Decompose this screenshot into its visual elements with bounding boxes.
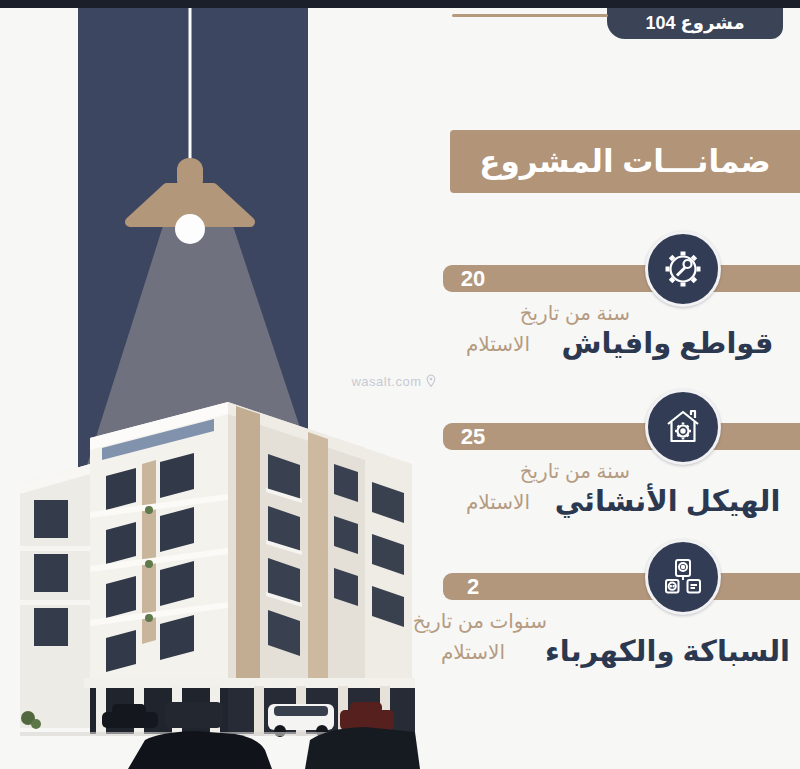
parked-car xyxy=(102,712,158,728)
guarantee-item-switches: 20 xyxy=(0,265,800,385)
guarantee-icon-circle xyxy=(645,389,721,465)
duration-text-line1: سنوات من تاريخ xyxy=(413,609,547,633)
carport-column xyxy=(96,686,106,736)
project-badge-label: مشروع 104 xyxy=(645,13,744,33)
foreground-car xyxy=(128,731,272,769)
infographic-canvas: مشروع 104 xyxy=(0,0,800,769)
duration-text-line2: الاستلام xyxy=(466,490,530,514)
balcony-plant xyxy=(145,560,153,568)
duration-value: 20 xyxy=(445,265,501,292)
car-windows xyxy=(274,706,328,716)
guarantee-label: السباكة والكهرباء xyxy=(535,634,800,668)
gear-wrench-icon xyxy=(661,247,705,291)
duration-text-line1: سنة من تاريخ xyxy=(520,301,630,325)
house-gear-icon xyxy=(661,405,705,449)
lamp-cord xyxy=(189,8,192,162)
project-badge: مشروع 104 xyxy=(607,8,783,39)
appliances-plug-icon xyxy=(661,555,705,599)
badge-accent-line xyxy=(452,14,608,17)
section-title: ضمانـــات المشروع xyxy=(479,143,771,180)
section-title-box: ضمانـــات المشروع xyxy=(450,130,800,193)
carport-column xyxy=(254,686,264,736)
guarantee-icon-circle xyxy=(645,539,721,615)
guarantee-icon-circle xyxy=(645,231,721,307)
building-ledge xyxy=(20,546,90,551)
duration-text-line2: الاستلام xyxy=(466,332,530,356)
light-bulb xyxy=(175,214,205,244)
guarantee-label: قواطع وافياش xyxy=(535,326,800,360)
duration-text-line2: الاستلام xyxy=(441,640,505,664)
duration-value: 25 xyxy=(445,423,501,450)
top-bar xyxy=(0,0,800,8)
guarantee-item-structure: 25 xyxy=(0,423,800,543)
duration-value: 2 xyxy=(445,573,501,600)
parked-car xyxy=(165,702,223,728)
bush xyxy=(31,719,41,729)
duration-text-line1: سنة من تاريخ xyxy=(520,459,630,483)
parked-car-maroon xyxy=(340,710,394,730)
guarantee-item-plumbing-electric: 2 سنوات من تاريخ الاستلام xyxy=(0,573,800,693)
guarantee-label: الهيكل الأنشائي xyxy=(535,484,800,518)
